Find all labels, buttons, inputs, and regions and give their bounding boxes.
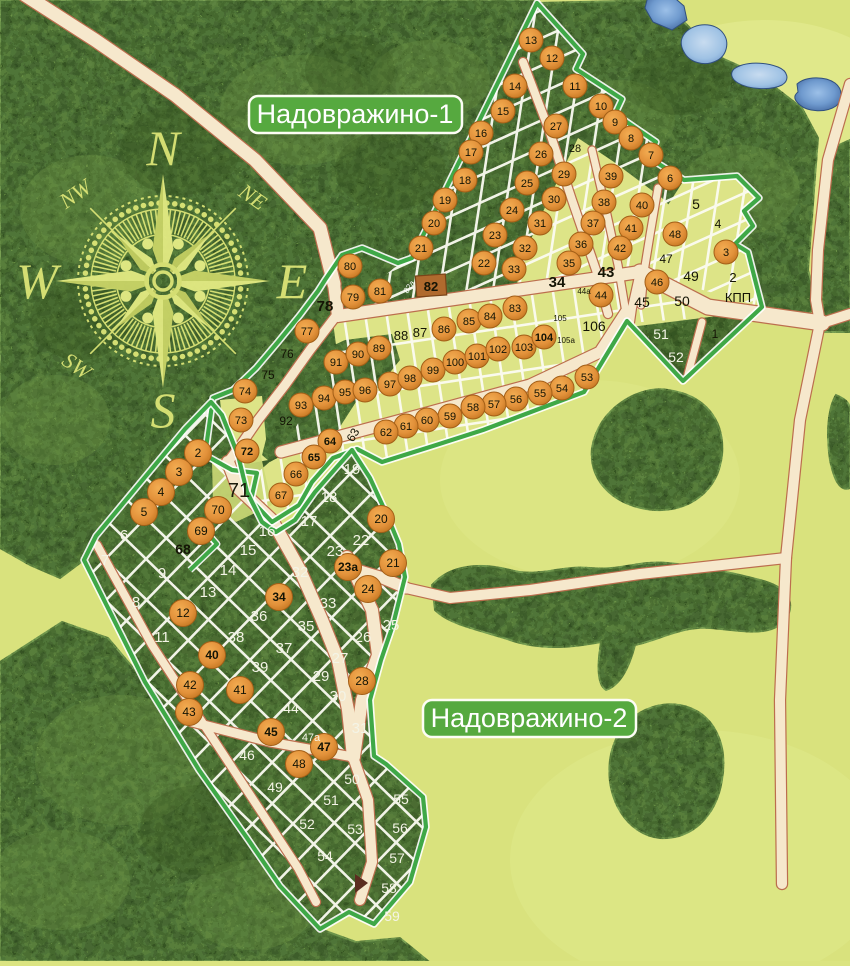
svg-text:21: 21 bbox=[386, 556, 400, 570]
svg-text:6: 6 bbox=[667, 173, 673, 185]
svg-text:105: 105 bbox=[553, 314, 567, 323]
svg-text:18: 18 bbox=[459, 175, 471, 187]
svg-text:7: 7 bbox=[648, 150, 654, 162]
svg-text:56: 56 bbox=[510, 394, 522, 406]
svg-text:25: 25 bbox=[383, 617, 400, 634]
svg-text:20: 20 bbox=[428, 218, 440, 230]
svg-text:98: 98 bbox=[404, 373, 416, 385]
svg-text:99: 99 bbox=[427, 365, 439, 377]
svg-text:2: 2 bbox=[729, 270, 736, 285]
svg-text:14: 14 bbox=[509, 81, 521, 93]
svg-text:83: 83 bbox=[509, 303, 521, 315]
svg-text:33: 33 bbox=[320, 595, 337, 612]
svg-text:21: 21 bbox=[415, 243, 427, 255]
svg-text:84: 84 bbox=[484, 311, 496, 323]
svg-text:55: 55 bbox=[534, 388, 546, 400]
svg-text:58: 58 bbox=[381, 880, 397, 896]
svg-text:8: 8 bbox=[132, 594, 140, 611]
svg-text:23: 23 bbox=[327, 543, 344, 560]
svg-text:42: 42 bbox=[614, 243, 626, 255]
svg-text:47a: 47a bbox=[302, 732, 321, 744]
svg-text:66: 66 bbox=[290, 469, 302, 481]
svg-text:12: 12 bbox=[176, 606, 190, 620]
svg-text:91: 91 bbox=[330, 357, 342, 369]
svg-text:74: 74 bbox=[239, 386, 251, 398]
svg-text:60: 60 bbox=[421, 415, 433, 427]
svg-text:20: 20 bbox=[374, 512, 388, 526]
svg-text:36: 36 bbox=[575, 239, 587, 251]
svg-text:56: 56 bbox=[392, 820, 408, 836]
svg-text:25: 25 bbox=[521, 178, 533, 190]
svg-text:105a: 105a bbox=[557, 336, 575, 345]
svg-text:51: 51 bbox=[323, 792, 339, 808]
svg-text:3: 3 bbox=[176, 465, 183, 479]
svg-text:19: 19 bbox=[344, 461, 361, 478]
svg-text:28: 28 bbox=[355, 674, 369, 688]
svg-text:34: 34 bbox=[549, 274, 566, 291]
svg-text:24: 24 bbox=[506, 205, 518, 217]
svg-text:26: 26 bbox=[355, 629, 372, 646]
svg-text:11: 11 bbox=[569, 81, 580, 93]
svg-text:17: 17 bbox=[301, 513, 318, 530]
svg-text:71: 71 bbox=[228, 480, 250, 502]
svg-text:48: 48 bbox=[669, 229, 681, 241]
svg-text:80: 80 bbox=[344, 261, 356, 273]
svg-text:КПП: КПП bbox=[725, 290, 751, 305]
svg-text:35: 35 bbox=[298, 618, 315, 635]
svg-text:59: 59 bbox=[384, 908, 400, 924]
svg-text:15: 15 bbox=[240, 542, 257, 559]
svg-text:40: 40 bbox=[636, 200, 648, 212]
svg-text:44: 44 bbox=[283, 700, 299, 716]
svg-text:55: 55 bbox=[393, 791, 409, 807]
svg-text:97: 97 bbox=[384, 379, 396, 391]
svg-text:42: 42 bbox=[183, 678, 197, 692]
svg-text:65: 65 bbox=[308, 452, 320, 464]
svg-text:106: 106 bbox=[582, 318, 606, 334]
svg-text:40: 40 bbox=[205, 648, 219, 662]
svg-text:27: 27 bbox=[332, 650, 349, 667]
svg-text:92: 92 bbox=[279, 414, 293, 428]
svg-text:5: 5 bbox=[692, 196, 700, 212]
svg-text:94: 94 bbox=[318, 393, 330, 405]
svg-text:7: 7 bbox=[101, 552, 109, 569]
svg-text:34: 34 bbox=[272, 590, 286, 604]
svg-text:47: 47 bbox=[659, 252, 673, 266]
svg-text:53: 53 bbox=[347, 821, 363, 837]
svg-text:44: 44 bbox=[595, 290, 607, 302]
svg-text:Надовражино-1: Надовражино-1 bbox=[257, 99, 454, 129]
svg-text:89: 89 bbox=[373, 343, 385, 355]
svg-text:9: 9 bbox=[612, 117, 618, 129]
svg-text:31: 31 bbox=[534, 218, 546, 230]
svg-text:41: 41 bbox=[233, 683, 247, 697]
svg-text:50: 50 bbox=[344, 771, 360, 787]
svg-text:15: 15 bbox=[497, 106, 509, 118]
svg-text:69: 69 bbox=[194, 524, 208, 538]
svg-text:4: 4 bbox=[158, 485, 165, 499]
svg-text:85: 85 bbox=[463, 316, 475, 328]
svg-text:2: 2 bbox=[195, 446, 202, 460]
svg-text:5: 5 bbox=[141, 505, 148, 519]
svg-text:12: 12 bbox=[546, 53, 558, 65]
svg-text:54: 54 bbox=[556, 383, 568, 395]
svg-text:19: 19 bbox=[439, 195, 451, 207]
svg-text:75: 75 bbox=[261, 368, 275, 382]
svg-text:23: 23 bbox=[489, 230, 501, 242]
svg-text:57: 57 bbox=[389, 850, 405, 866]
svg-text:29: 29 bbox=[313, 668, 330, 685]
svg-text:36: 36 bbox=[251, 608, 268, 625]
svg-text:96: 96 bbox=[359, 385, 371, 397]
svg-text:37: 37 bbox=[587, 218, 599, 230]
svg-text:13: 13 bbox=[525, 35, 537, 47]
svg-text:93: 93 bbox=[295, 400, 307, 412]
svg-text:4: 4 bbox=[715, 217, 722, 231]
svg-text:45: 45 bbox=[264, 725, 278, 739]
svg-text:29: 29 bbox=[558, 169, 570, 181]
svg-text:22: 22 bbox=[353, 532, 370, 549]
svg-text:Надовражино-2: Надовражино-2 bbox=[431, 703, 628, 733]
svg-text:90: 90 bbox=[352, 349, 364, 361]
svg-text:30: 30 bbox=[330, 688, 347, 705]
svg-text:30: 30 bbox=[548, 194, 560, 206]
svg-text:16: 16 bbox=[475, 128, 487, 140]
svg-text:24: 24 bbox=[361, 582, 375, 596]
svg-text:46: 46 bbox=[239, 747, 255, 763]
svg-text:46: 46 bbox=[651, 277, 663, 289]
svg-text:45: 45 bbox=[634, 294, 650, 310]
svg-text:86: 86 bbox=[438, 324, 450, 336]
svg-text:41: 41 bbox=[625, 223, 637, 235]
svg-text:61: 61 bbox=[400, 421, 412, 433]
svg-text:W: W bbox=[16, 253, 62, 309]
svg-text:88: 88 bbox=[394, 328, 408, 343]
svg-text:18: 18 bbox=[321, 489, 338, 506]
svg-text:100: 100 bbox=[446, 357, 464, 369]
svg-text:17: 17 bbox=[465, 147, 477, 159]
svg-text:13: 13 bbox=[200, 584, 217, 601]
svg-text:38: 38 bbox=[598, 197, 610, 209]
svg-text:77: 77 bbox=[301, 326, 313, 338]
svg-text:E: E bbox=[276, 253, 308, 309]
svg-text:16: 16 bbox=[259, 523, 276, 540]
svg-text:52: 52 bbox=[299, 816, 315, 832]
svg-text:10: 10 bbox=[595, 101, 607, 113]
svg-text:N: N bbox=[145, 120, 182, 176]
svg-text:57: 57 bbox=[488, 399, 500, 411]
svg-text:3: 3 bbox=[723, 247, 729, 259]
svg-text:44a: 44a bbox=[577, 287, 591, 296]
svg-text:54: 54 bbox=[317, 848, 333, 864]
svg-text:68: 68 bbox=[175, 541, 191, 557]
svg-text:50: 50 bbox=[674, 293, 690, 309]
svg-text:104: 104 bbox=[535, 332, 554, 344]
svg-text:82: 82 bbox=[424, 279, 438, 294]
svg-text:49: 49 bbox=[683, 268, 699, 284]
svg-text:35: 35 bbox=[563, 258, 575, 270]
svg-text:79: 79 bbox=[347, 292, 359, 304]
svg-text:32: 32 bbox=[519, 243, 531, 255]
svg-text:6: 6 bbox=[120, 527, 128, 544]
svg-text:32: 32 bbox=[292, 564, 309, 581]
svg-text:28: 28 bbox=[569, 143, 581, 155]
svg-text:31: 31 bbox=[352, 720, 369, 737]
svg-text:72: 72 bbox=[241, 446, 253, 458]
svg-text:73: 73 bbox=[235, 415, 247, 427]
svg-text:53: 53 bbox=[581, 372, 593, 384]
svg-text:76: 76 bbox=[280, 347, 294, 361]
svg-text:49: 49 bbox=[267, 779, 283, 795]
svg-text:37: 37 bbox=[276, 640, 293, 657]
svg-text:52: 52 bbox=[668, 349, 684, 365]
svg-text:59: 59 bbox=[444, 411, 456, 423]
svg-text:87: 87 bbox=[413, 325, 427, 340]
svg-text:38: 38 bbox=[228, 629, 245, 646]
svg-text:103: 103 bbox=[515, 342, 533, 354]
svg-text:67: 67 bbox=[275, 490, 287, 502]
svg-text:33: 33 bbox=[508, 264, 520, 276]
svg-text:58: 58 bbox=[467, 402, 479, 414]
svg-text:102: 102 bbox=[489, 344, 507, 356]
svg-text:62: 62 bbox=[380, 427, 392, 439]
svg-text:22: 22 bbox=[478, 258, 490, 270]
svg-text:81: 81 bbox=[374, 286, 386, 298]
svg-text:26: 26 bbox=[535, 149, 547, 161]
svg-text:43: 43 bbox=[182, 705, 196, 719]
svg-text:8: 8 bbox=[628, 133, 634, 145]
svg-text:43: 43 bbox=[598, 264, 615, 281]
svg-text:11: 11 bbox=[154, 629, 170, 646]
svg-text:48: 48 bbox=[292, 757, 306, 771]
svg-text:70: 70 bbox=[211, 503, 225, 517]
svg-text:78: 78 bbox=[317, 298, 334, 315]
svg-text:23a: 23a bbox=[338, 560, 358, 574]
svg-text:27: 27 bbox=[550, 121, 562, 133]
svg-text:95: 95 bbox=[339, 387, 351, 399]
svg-text:S: S bbox=[151, 382, 176, 438]
svg-text:39: 39 bbox=[252, 659, 269, 676]
svg-text:9: 9 bbox=[158, 565, 166, 582]
svg-text:101: 101 bbox=[468, 351, 486, 363]
svg-text:51: 51 bbox=[653, 326, 669, 342]
svg-text:39: 39 bbox=[605, 171, 617, 183]
svg-text:14: 14 bbox=[220, 562, 237, 579]
svg-text:1: 1 bbox=[712, 327, 719, 341]
svg-text:64: 64 bbox=[324, 436, 337, 448]
